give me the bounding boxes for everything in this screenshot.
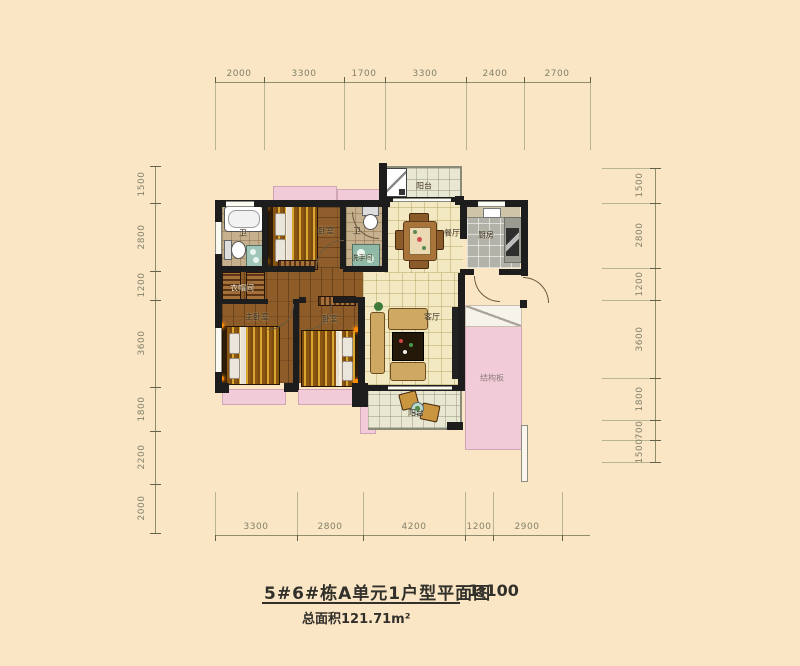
room-label-dining: 餐厅: [444, 228, 460, 239]
window: [393, 198, 451, 202]
extension-line: [602, 440, 655, 441]
room-label-balcony-top: 阳台: [416, 181, 432, 192]
extension-line: [215, 83, 216, 150]
extension-line: [602, 203, 655, 204]
bay-window-bottom-left: [222, 389, 286, 405]
window: [215, 222, 222, 254]
extension-line: [602, 378, 655, 379]
bed: [268, 206, 318, 268]
dimension-line-left: [155, 166, 156, 533]
plan-total-area: 总面积121.71m²: [302, 608, 410, 627]
extension-line: [264, 83, 265, 150]
dimension-label: 2800: [318, 522, 343, 532]
dimension-label: 1200: [467, 522, 492, 532]
wall-segment: [299, 297, 306, 303]
dimension-tick: [650, 420, 661, 421]
dimension-tick: [150, 484, 161, 485]
dimension-label: 1800: [137, 397, 147, 422]
door-arc-kitchen: [474, 276, 500, 302]
plant: [374, 302, 383, 311]
dimension-line-bottom: [215, 535, 590, 536]
wall-segment: [458, 273, 465, 391]
extension-line: [297, 492, 298, 535]
wall-pillar: [284, 383, 298, 392]
dimension-tick: [150, 533, 161, 534]
toilet: [231, 241, 246, 259]
extension-line: [524, 83, 525, 150]
wall-segment: [293, 302, 299, 390]
wall-segment: [382, 203, 388, 269]
dimension-tick: [150, 431, 161, 432]
extension-line: [493, 492, 494, 535]
extension-line: [602, 462, 655, 463]
door-arc-entry: [523, 277, 549, 303]
sofa: [390, 362, 426, 381]
dimension-label: 2800: [635, 223, 645, 248]
sliding-door: [388, 386, 452, 390]
dimension-tick: [650, 462, 661, 463]
room-label-kitchen: 厨房: [478, 230, 494, 241]
dimension-label: 2400: [483, 69, 508, 79]
floor-plan-canvas: 2000 3300 1700 3300 2400 2700 3300 2800 …: [0, 0, 800, 666]
plan-scale: 1:100: [468, 581, 519, 600]
dimension-tick: [650, 440, 661, 441]
extension-line: [385, 83, 386, 150]
chaise: [370, 312, 385, 374]
refrigerator: [506, 228, 519, 256]
dimension-label: 1200: [635, 272, 645, 297]
dimension-label: 1500: [635, 173, 645, 198]
title-underline: [262, 602, 460, 604]
bed-second: [301, 330, 360, 387]
extension-line: [344, 83, 345, 150]
dimension-label: 3600: [137, 331, 147, 356]
dimension-tick: [650, 300, 661, 301]
kitchen-sink: [483, 208, 501, 218]
room-label-bedroom-top: 卧室: [318, 226, 334, 237]
dimension-label: 1700: [352, 69, 377, 79]
extension-line: [363, 492, 364, 535]
wall-segment: [521, 200, 528, 276]
sofa: [388, 308, 428, 330]
dimension-label: 2800: [137, 225, 147, 250]
dimension-label: 2200: [137, 445, 147, 470]
dimension-tick: [150, 203, 161, 204]
dimension-label: 2700: [545, 69, 570, 79]
dimension-label: 3300: [413, 69, 438, 79]
room-label-cloakroom: 衣帽间: [230, 283, 254, 294]
room-label-master-bedroom: 主卧室: [245, 312, 269, 323]
dimension-label: 2900: [515, 522, 540, 532]
slab-edge-wall: [521, 425, 528, 482]
room-label-bath-mid: 卫: [353, 226, 361, 237]
entry-ramp: [465, 305, 522, 327]
room-label-balcony-bottom: 阳台: [408, 408, 424, 419]
dimension-label: 2000: [137, 496, 147, 521]
wall-segment: [358, 297, 365, 390]
dimension-label: 1200: [137, 273, 147, 298]
dimension-tick: [650, 378, 661, 379]
extension-line: [602, 420, 655, 421]
extension-line: [562, 492, 563, 535]
room-label-bedroom-second: 卧室: [322, 314, 338, 325]
bed-master: [222, 326, 280, 385]
bay-window-bottom-right: [298, 389, 354, 405]
wall-segment: [343, 266, 388, 272]
extension-line: [602, 168, 655, 169]
extension-line: [215, 492, 216, 535]
window: [215, 328, 222, 372]
wall-segment: [215, 266, 315, 272]
wall-segment: [460, 203, 467, 239]
dimension-tick: [650, 203, 661, 204]
dimension-line-top: [215, 82, 590, 83]
dimension-tick: [150, 300, 161, 301]
room-label-structural-slab: 结构板: [480, 373, 504, 384]
extension-line: [466, 83, 467, 150]
dimension-label: 3600: [635, 327, 645, 352]
dimension-label: 4200: [402, 522, 427, 532]
dining-table: [403, 221, 437, 261]
dimension-label: 1500: [137, 172, 147, 197]
dimension-label: 1500: [635, 439, 645, 464]
wall-pillar: [447, 422, 463, 430]
extension-line: [590, 83, 591, 150]
wall-segment: [499, 269, 528, 275]
dimension-label: 2000: [227, 69, 252, 79]
dimension-tick: [650, 268, 661, 269]
dimension-label: 700: [635, 421, 645, 440]
dimension-label: 1800: [635, 387, 645, 412]
dimension-tick: [150, 387, 161, 388]
room-label-bath-top: 卫: [239, 228, 247, 239]
wall-segment: [262, 203, 268, 269]
window: [226, 201, 254, 207]
dimension-line-right: [655, 168, 656, 462]
wall-segment: [215, 299, 268, 304]
dimension-tick: [150, 271, 161, 272]
plan-title: 5#6#栋A单元1户型平面图: [264, 579, 491, 604]
wall-pillar: [215, 383, 229, 393]
window: [478, 201, 505, 207]
dimension-label: 3300: [292, 69, 317, 79]
washing-machine: [384, 168, 407, 197]
room-label-living: 客厅: [424, 312, 440, 323]
extension-line: [602, 268, 655, 269]
extension-line: [602, 300, 655, 301]
dimension-tick: [150, 166, 161, 167]
dimension-label: 3300: [244, 522, 269, 532]
room-label-washroom: 洗手间: [352, 253, 373, 263]
coffee-table: [392, 332, 424, 361]
dimension-tick: [650, 168, 661, 169]
